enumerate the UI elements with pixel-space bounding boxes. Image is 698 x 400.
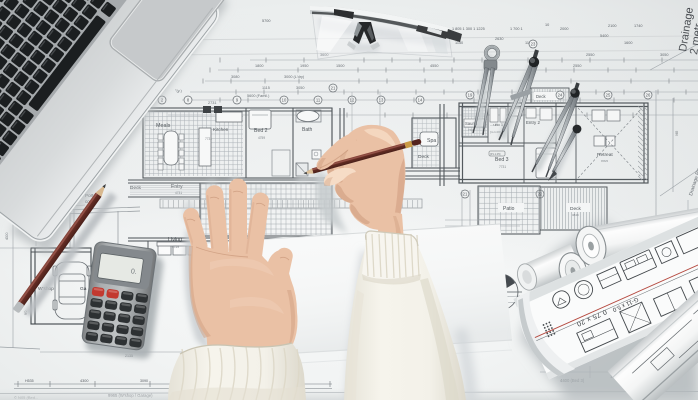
svg-text:H535: H535 [25,379,34,383]
svg-text:4300: 4300 [80,379,88,383]
svg-text:0.: 0. [130,268,137,276]
svg-text:Ga: Ga [80,286,87,292]
svg-text:3090: 3090 [140,379,148,383]
